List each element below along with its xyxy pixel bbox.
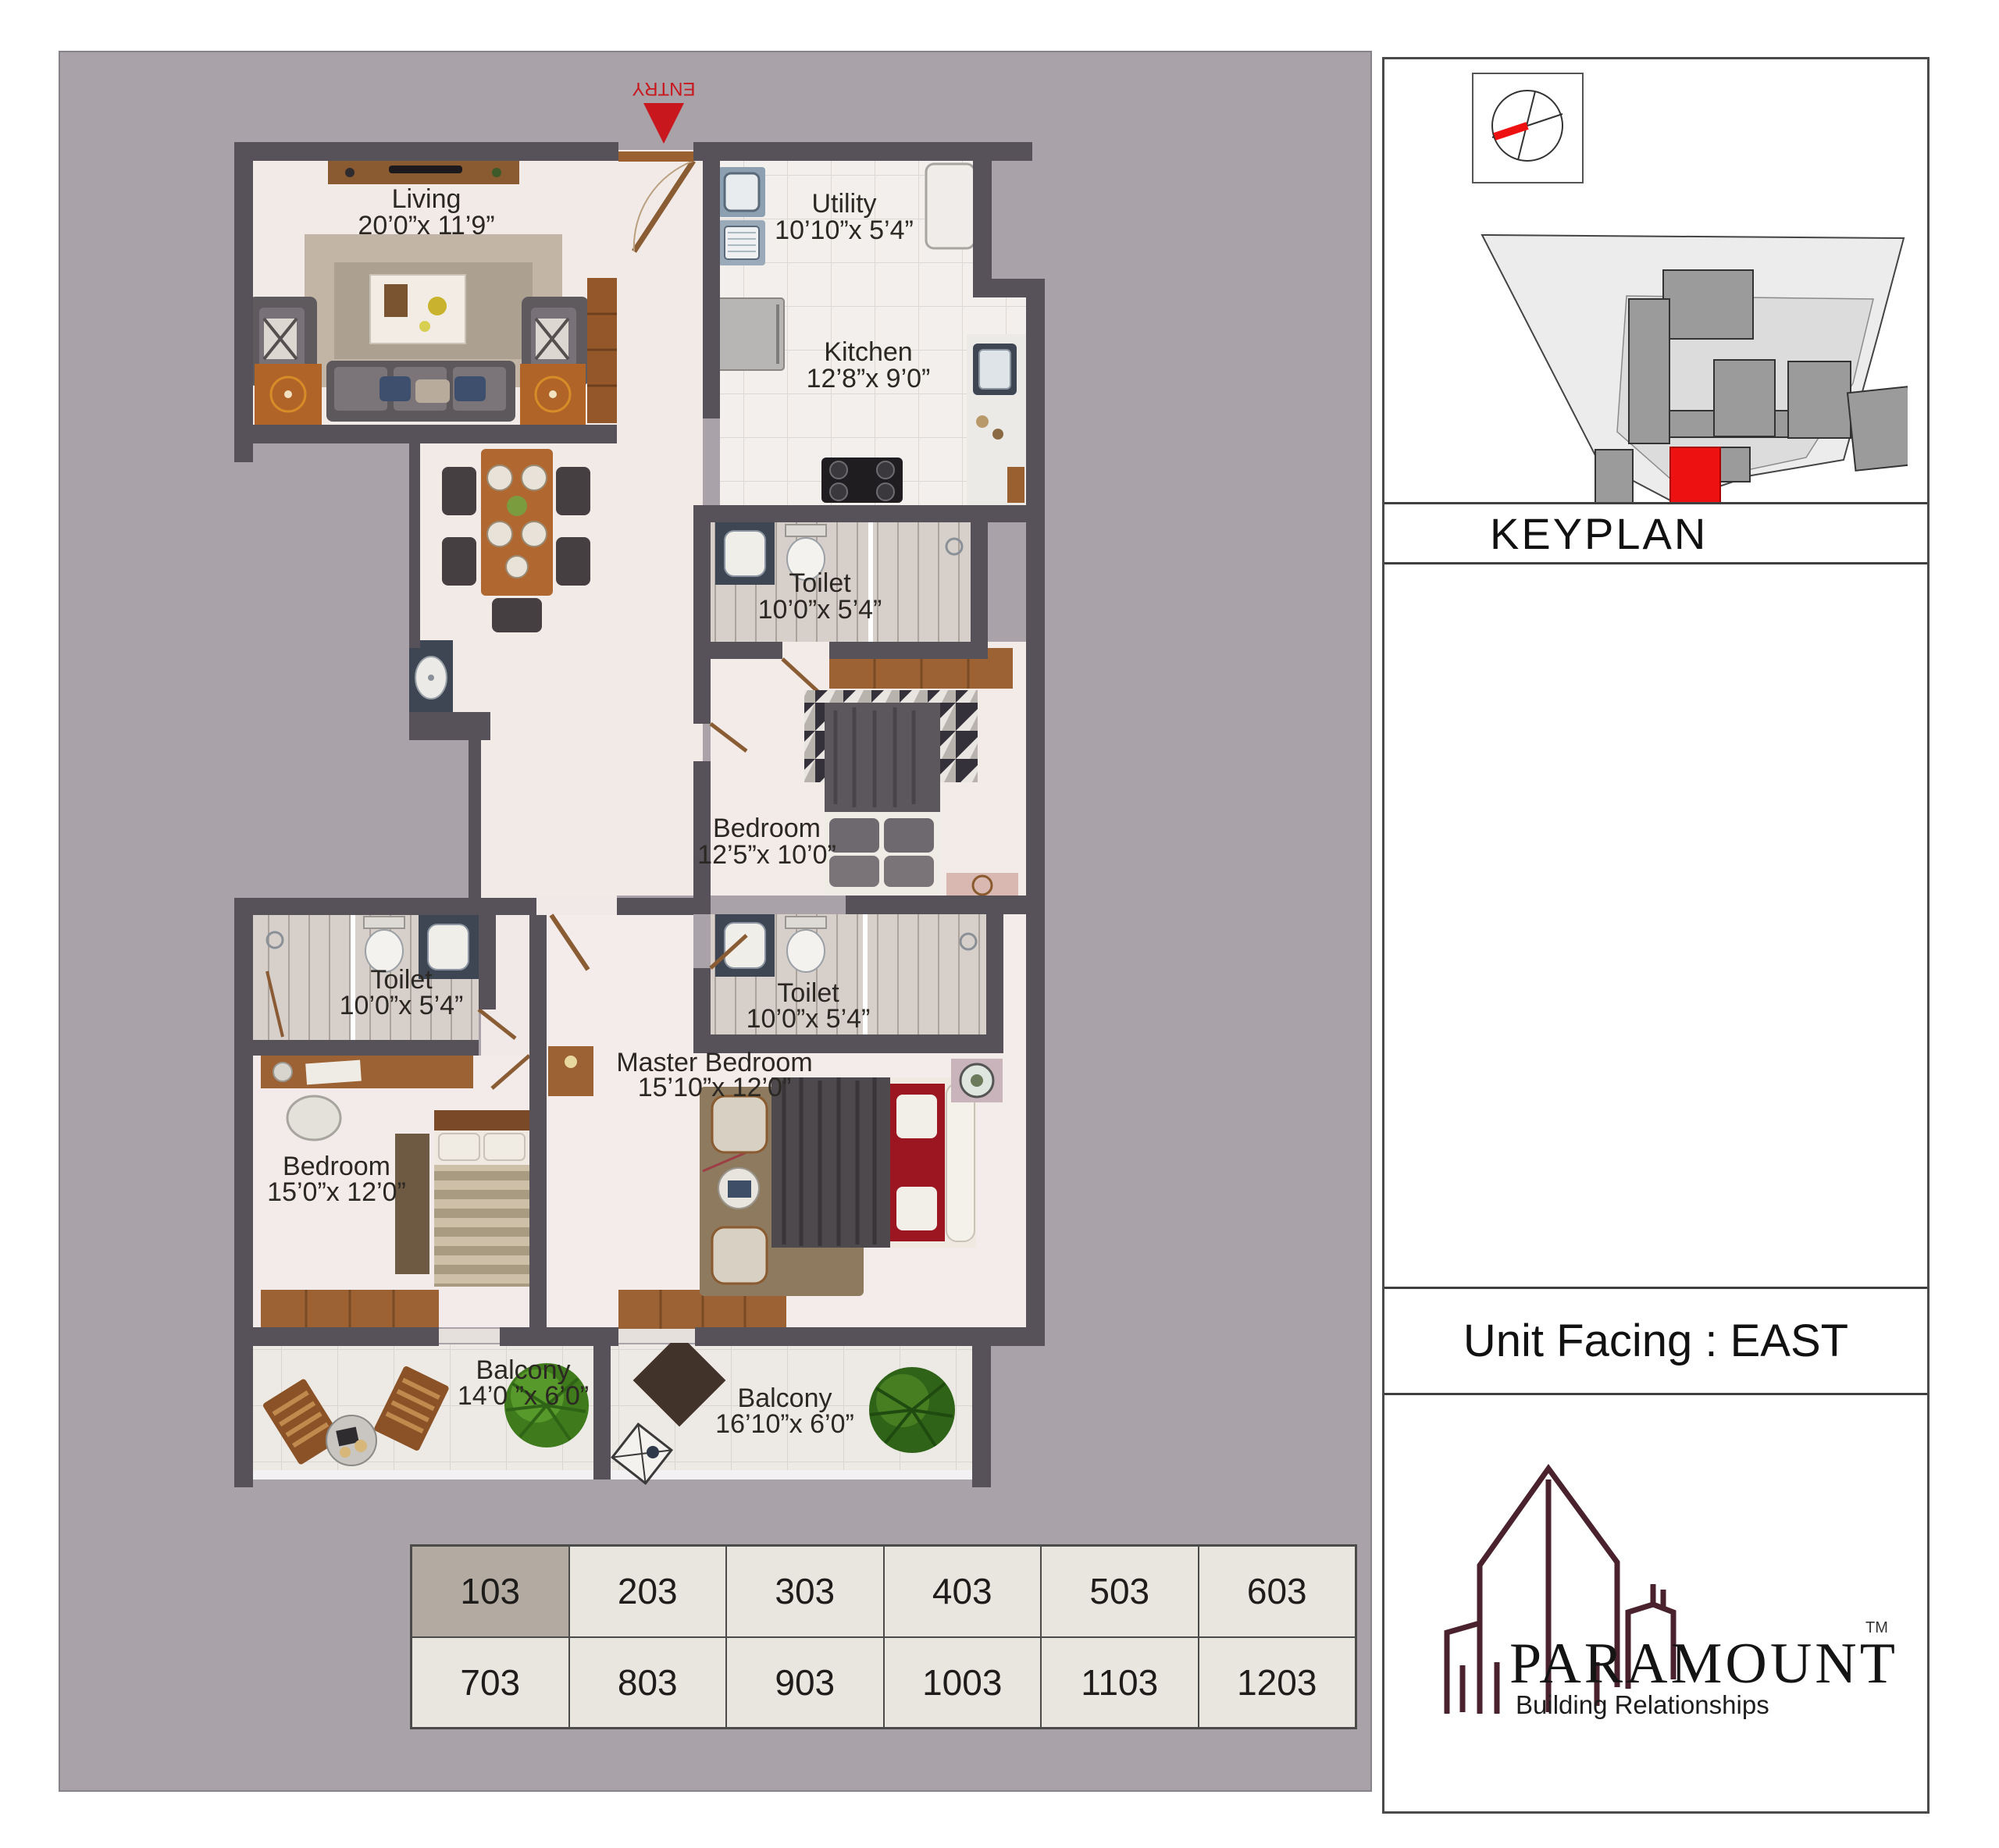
room-dims: 10’0”x 5’4” (340, 991, 464, 1020)
unit-facing-band: Unit Facing : EAST (1384, 1287, 1927, 1395)
brand-name: PARAMOUNT (1509, 1632, 1898, 1696)
entry-label: ENTRY (632, 78, 696, 99)
room-label: Bedroom (713, 814, 821, 843)
unit-cell[interactable]: 603 (1199, 1547, 1356, 1636)
brand-tm: TM (1865, 1619, 1888, 1636)
compass-icon (1473, 74, 1582, 182)
paramount-logo: PARAMOUNT TM Building Relationships (1431, 1431, 1900, 1728)
room-label: Utility (811, 189, 876, 219)
unit-cell[interactable]: 1003 (885, 1638, 1041, 1728)
unit-cell[interactable]: 903 (727, 1638, 883, 1728)
floor-plan-svg: ENTRY Living 20’0”x 11’9” Utility 10’10”… (59, 51, 1372, 1792)
unit-cell[interactable]: 703 (412, 1638, 568, 1728)
room-dims: 20’0”x 11’9” (358, 211, 494, 240)
room-label: Kitchen (824, 337, 912, 367)
keyplan-title-band: KEYPLAN (1384, 502, 1927, 564)
entry-marker: ENTRY (632, 78, 696, 144)
unit-cell[interactable]: 803 (570, 1638, 726, 1728)
page: ENTRY Living 20’0”x 11’9” Utility 10’10”… (0, 0, 1999, 1848)
room-dims: 10’0”x 5’4” (758, 595, 882, 625)
room-label: Living (392, 184, 461, 214)
unit-cell[interactable]: 1203 (1199, 1638, 1356, 1728)
unit-cell[interactable]: 203 (570, 1547, 726, 1636)
room-dims: 10’10”x 5’4” (775, 215, 914, 245)
room-dims: 15’0”x 12’0” (267, 1177, 406, 1207)
unit-cell[interactable]: 1103 (1042, 1638, 1198, 1728)
room-dims: 16’10”x 6’0” (715, 1409, 854, 1439)
keyplan-label: KEYPLAN (1490, 508, 1708, 559)
unit-cell[interactable]: 303 (727, 1547, 883, 1636)
compass-box (1472, 73, 1584, 183)
room-dims: 10’0”x 5’4” (747, 1004, 871, 1034)
sofa (326, 361, 515, 422)
room-dims: 14’0 ”x 6’0” (458, 1381, 589, 1411)
unit-cell[interactable]: 503 (1042, 1547, 1198, 1636)
balcony-door-sill (439, 1329, 500, 1343)
unit-cell-selected[interactable]: 103 (412, 1547, 568, 1636)
plant (869, 1367, 955, 1453)
unit-facing-label: Unit Facing : EAST (1463, 1315, 1848, 1367)
unit-cell[interactable]: 403 (885, 1547, 1041, 1636)
keyplan-map (1439, 227, 1908, 528)
room-dims: 12’5”x 10’0” (697, 840, 836, 870)
room-dims: 15’10”x 12’0” (638, 1073, 792, 1102)
entry-threshold (618, 151, 693, 162)
brand-tagline: Building Relationships (1516, 1690, 1769, 1719)
room-dims: 12’8”x 9’0” (807, 364, 931, 393)
room-label: Toilet (789, 568, 851, 598)
balcony-door-sill (618, 1329, 695, 1343)
unit-number-table: 103 203 303 403 503 603 703 803 903 1003… (410, 1544, 1357, 1729)
sidebar: KEYPLAN Unit Facing : EAST PARAMOUNT TM … (1382, 57, 1930, 1814)
